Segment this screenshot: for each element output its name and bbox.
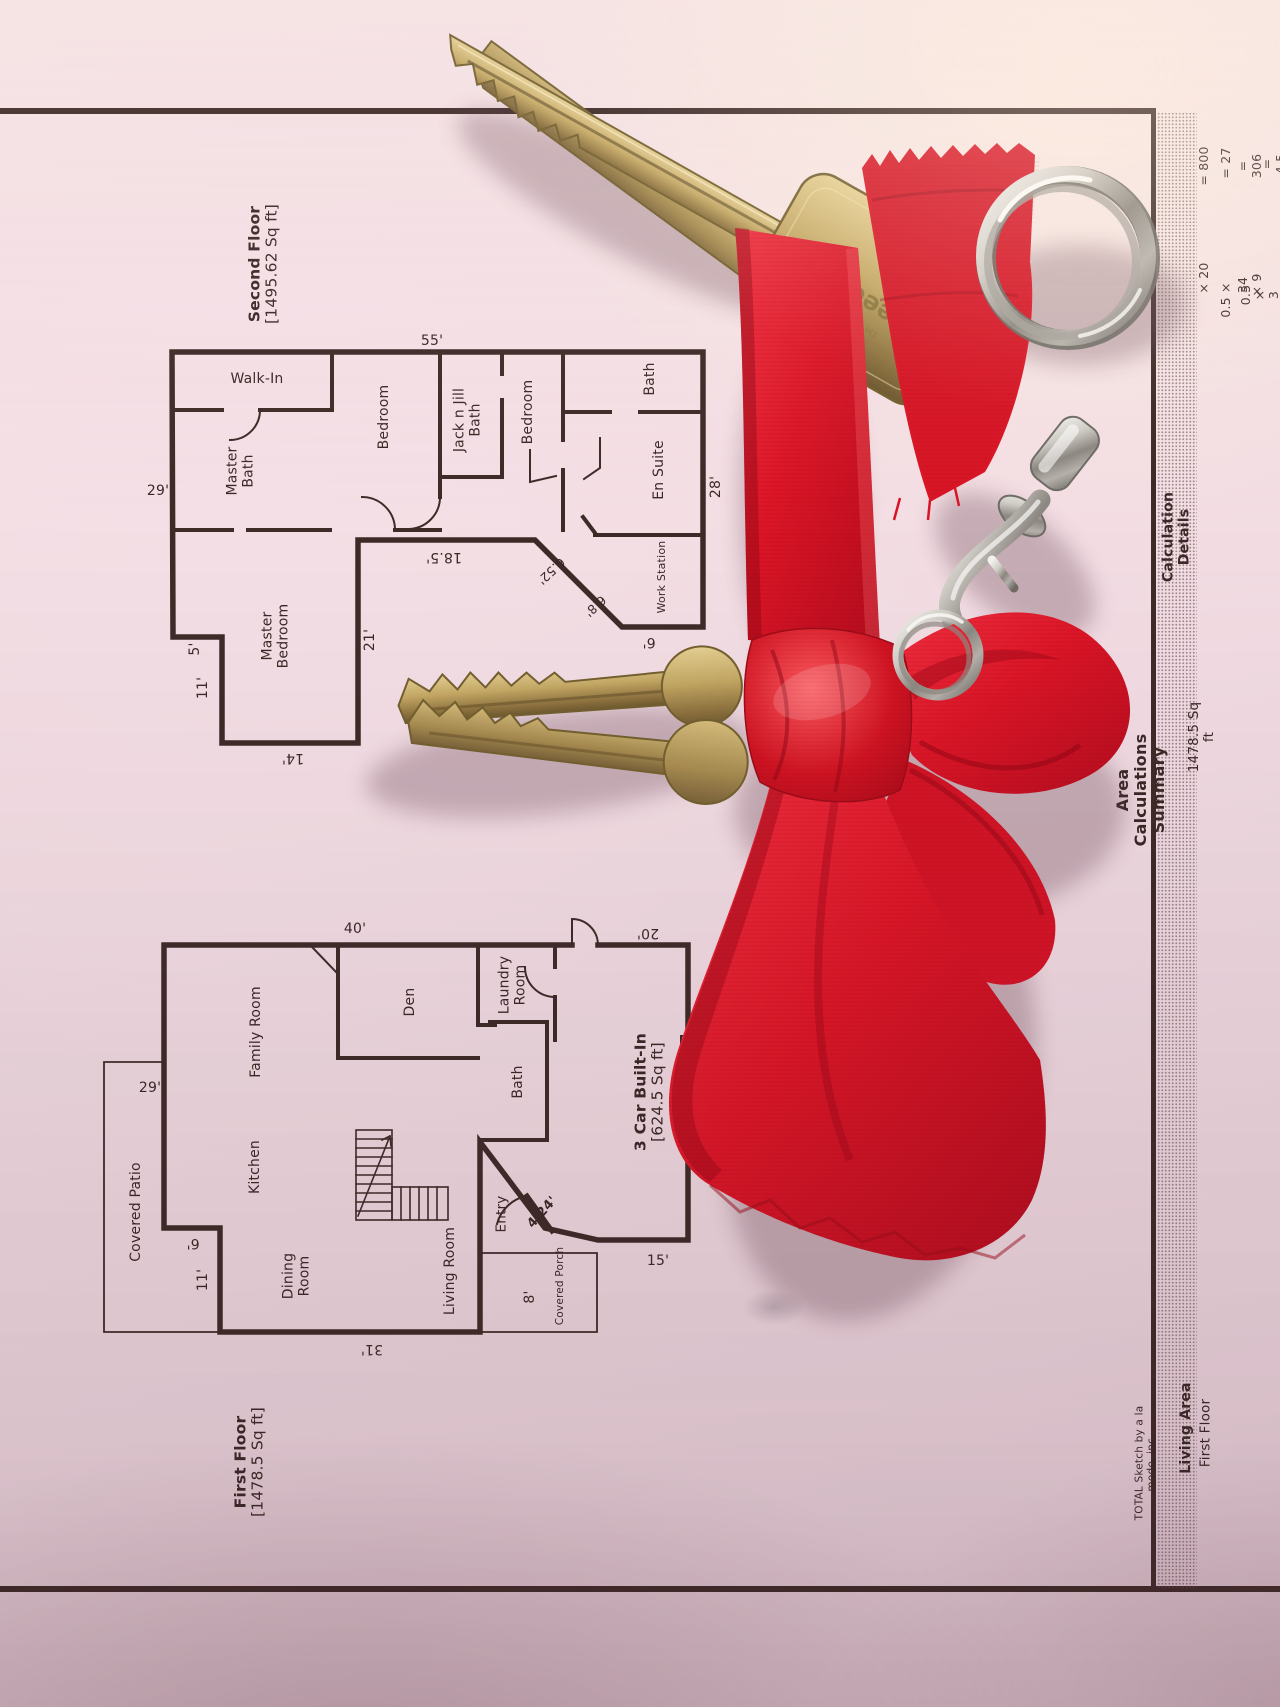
ribbon-bow [669, 612, 1130, 1260]
photo-of-floorplan-with-keys: Second Floor [1495.62 Sq ft] Walk-In Mas… [0, 0, 1280, 1707]
ribbon-band [735, 228, 880, 646]
keys-and-ribbon: eedom TM [0, 0, 1280, 1707]
